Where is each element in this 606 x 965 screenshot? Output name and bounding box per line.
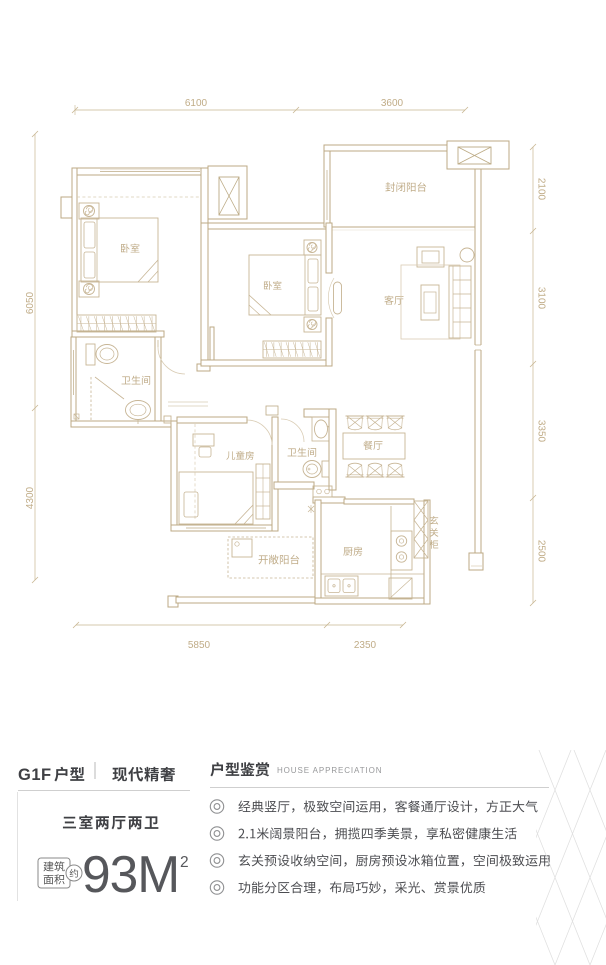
svg-text:2100: 2100: [536, 178, 547, 201]
svg-text:3600: 3600: [381, 98, 404, 109]
svg-text:3350: 3350: [536, 420, 547, 443]
svg-text:G1F: G1F: [18, 766, 52, 784]
svg-text:2: 2: [180, 854, 189, 871]
svg-text:4300: 4300: [25, 486, 36, 509]
svg-text:2350: 2350: [354, 640, 377, 651]
svg-text:3100: 3100: [536, 287, 547, 310]
svg-text:6050: 6050: [25, 291, 36, 314]
svg-text:6100: 6100: [185, 98, 208, 109]
svg-text:HOUSE APPRECIATION: HOUSE APPRECIATION: [277, 766, 382, 775]
svg-text:2500: 2500: [536, 540, 547, 563]
svg-text:5850: 5850: [188, 640, 211, 651]
svg-text:93M: 93M: [82, 845, 179, 903]
